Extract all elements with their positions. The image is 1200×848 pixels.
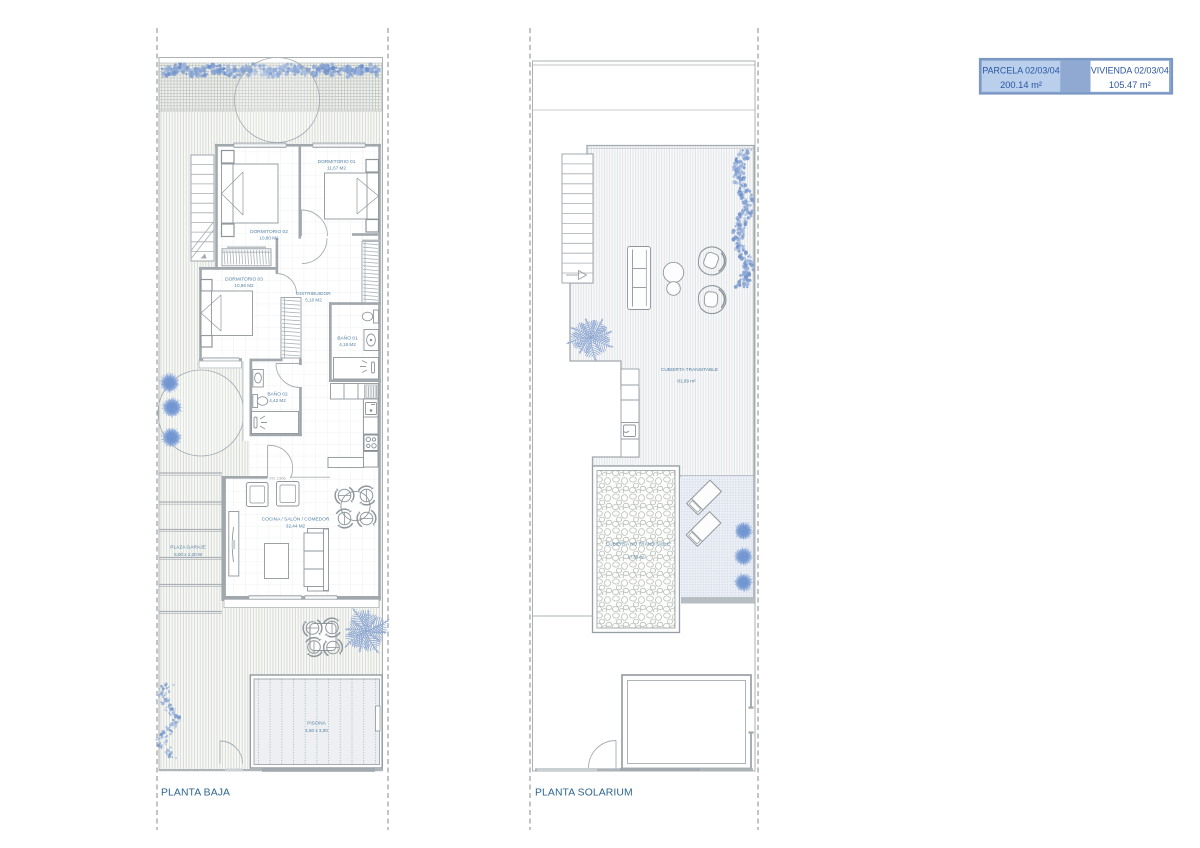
svg-text:CUBIERTA TRANSITABLE: CUBIERTA TRANSITABLE [661,367,718,373]
svg-text:P.R. 1/906: P.R. 1/906 [269,477,285,481]
svg-text:DORMITORIO 01: DORMITORIO 01 [318,159,356,165]
svg-text:17,66 m²: 17,66 m² [628,555,645,560]
svg-text:105.47 m²: 105.47 m² [1109,80,1151,90]
svg-text:DISTRIBUIDOR: DISTRIBUIDOR [296,291,331,297]
svg-text:BAÑO 02: BAÑO 02 [267,391,288,398]
svg-text:COCINA / SALÓN / COMEDOR: COCINA / SALÓN / COMEDOR [262,516,330,523]
svg-text:5,00 x 2,20 M: 5,00 x 2,20 M [174,552,202,557]
svg-text:81,09 m²: 81,09 m² [677,379,696,384]
svg-text:11,67 M2: 11,67 M2 [327,166,346,171]
svg-text:CUBIERTA NO TRANSITABLE: CUBIERTA NO TRANSITABLE [606,542,670,547]
svg-text:PLANTA SOLARIUM: PLANTA SOLARIUM [535,788,633,799]
svg-text:4,50 x 3,00: 4,50 x 3,00 [305,728,328,733]
svg-text:DORMITORIO 02: DORMITORIO 02 [250,229,288,235]
svg-text:PISCINA: PISCINA [307,721,326,726]
svg-text:10,80 M2: 10,80 M2 [259,236,279,241]
svg-text:VIVIENDA 02/03/04: VIVIENDA 02/03/04 [1091,66,1169,76]
svg-text:32,44 M2: 32,44 M2 [286,524,306,529]
svg-text:10,86 M2: 10,86 M2 [234,283,254,288]
svg-text:200.14 m²: 200.14 m² [1000,80,1042,90]
svg-text:PLANTA BAJA: PLANTA BAJA [161,788,230,799]
svg-text:5,10 M2: 5,10 M2 [305,298,322,303]
svg-text:4,42 M2: 4,42 M2 [269,398,286,403]
svg-text:PARCELA 02/03/04: PARCELA 02/03/04 [982,66,1059,76]
svg-text:BAÑO 01: BAÑO 01 [337,335,358,342]
svg-text:PLAZA GARAJE: PLAZA GARAJE [170,545,205,551]
svg-text:DORMITORIO 03: DORMITORIO 03 [225,277,263,283]
svg-text:4,16 M2: 4,16 M2 [339,342,356,347]
